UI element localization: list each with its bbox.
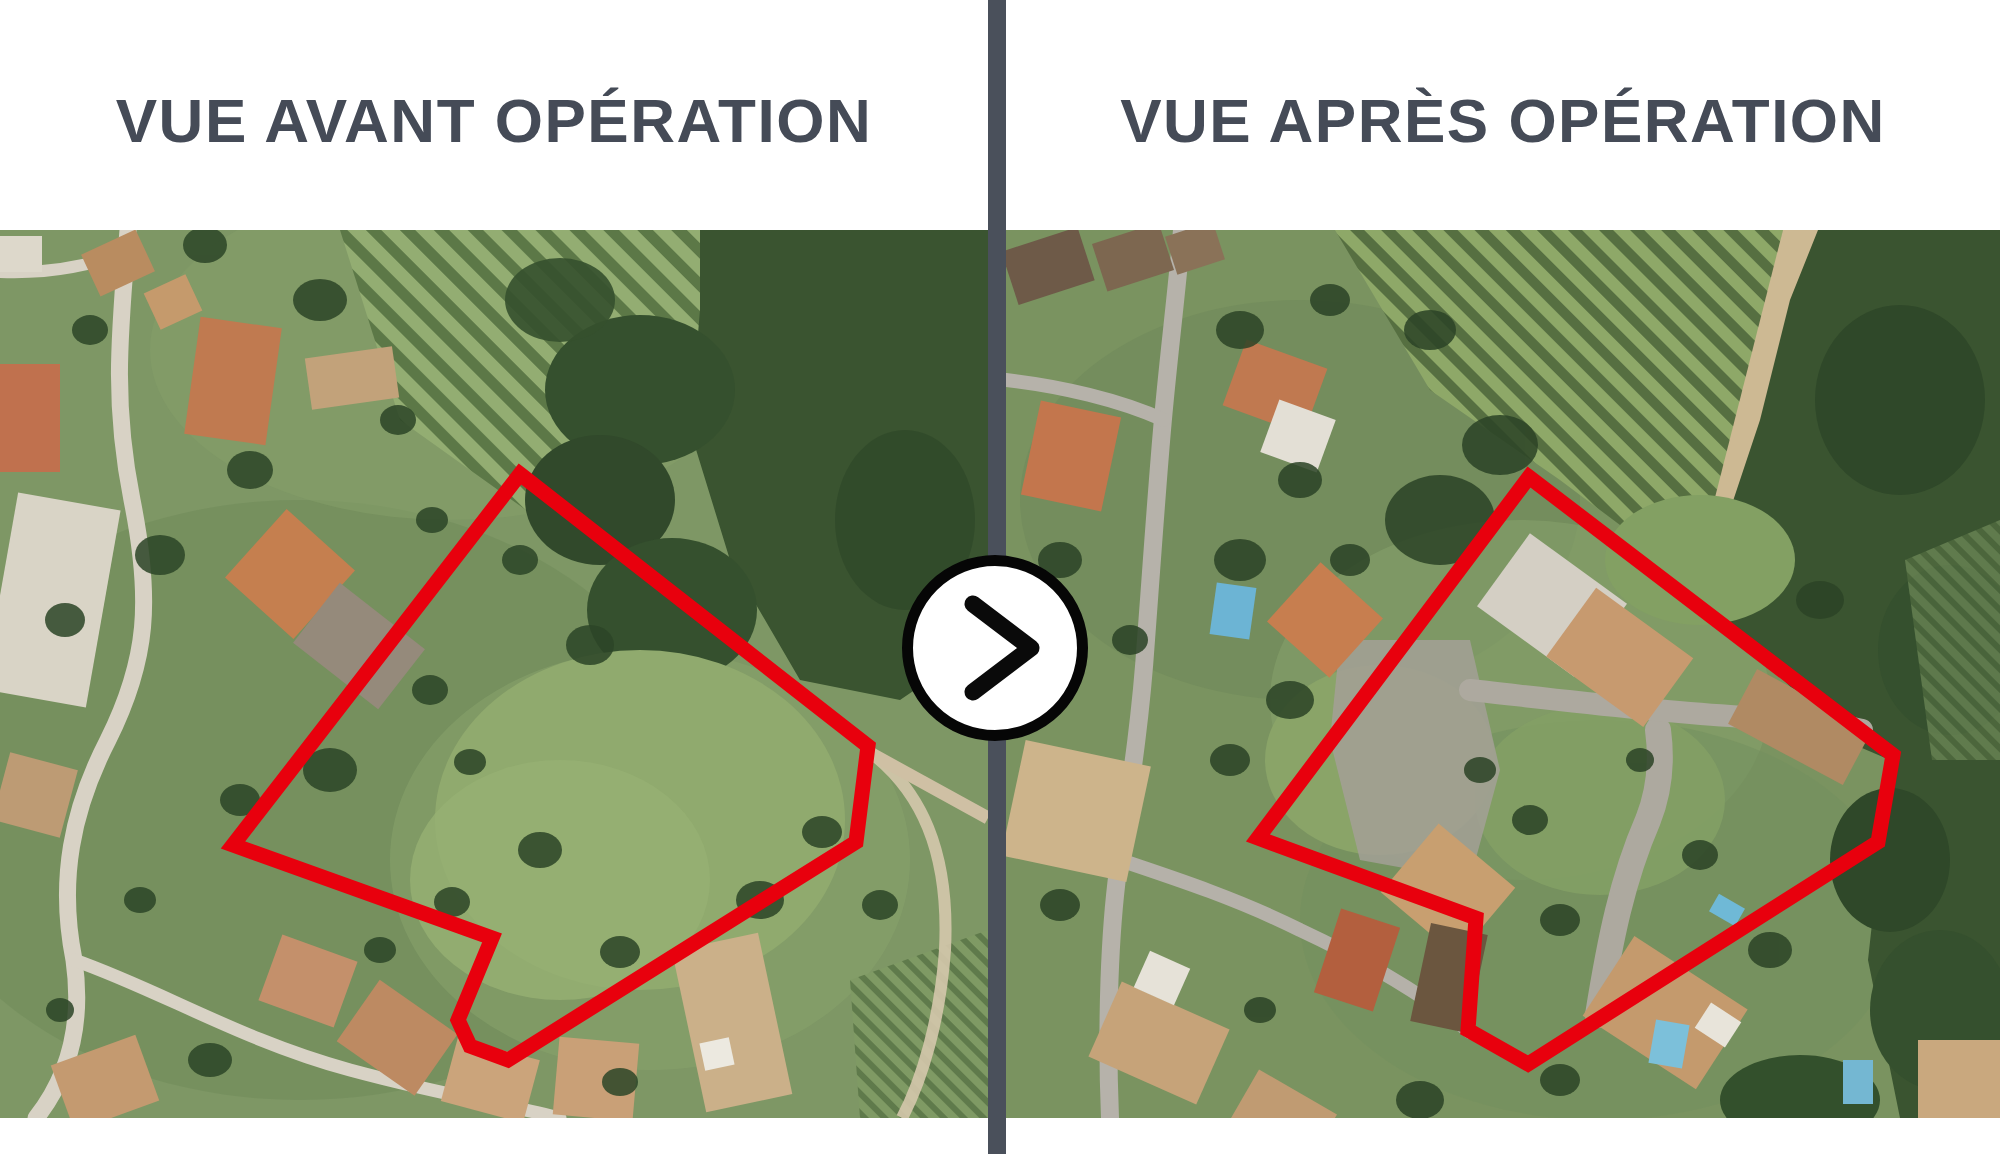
chevron-right-icon (913, 566, 1077, 730)
after-aerial-scene (1001, 221, 2000, 1154)
next-arrow-button[interactable] (902, 555, 1088, 741)
before-title: VUE AVANT OPÉRATION (0, 86, 988, 156)
before-after-comparison: VUE AVANT OPÉRATION VUE APRÈS OPÉRATION (0, 0, 2000, 1154)
before-aerial-scene (0, 180, 988, 1131)
after-title: VUE APRÈS OPÉRATION (1006, 86, 2000, 156)
